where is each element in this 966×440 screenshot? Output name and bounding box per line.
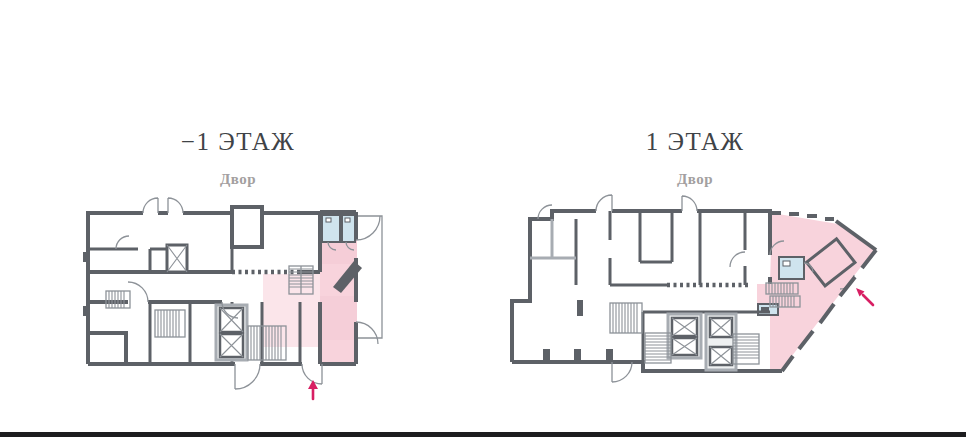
top-room	[232, 207, 262, 247]
floor-plan-1-drawing	[500, 190, 890, 410]
wet-rooms-minus-1	[322, 215, 355, 242]
courtyard-label-minus-1: Двор	[78, 171, 398, 188]
floor-plan-minus-1-drawing	[78, 196, 398, 408]
elevator-icon	[668, 314, 736, 370]
floor-plans-page: −1 ЭТАЖ Двор 1 ЭТАЖ Двор	[0, 0, 966, 440]
floor-title-1: 1 ЭТАЖ	[500, 128, 890, 156]
courtyard-label-1: Двор	[500, 171, 890, 188]
floor-title-minus-1: −1 ЭТАЖ	[78, 128, 398, 156]
entrance-arrow-up-left-icon	[856, 288, 873, 305]
terrace-outline	[357, 216, 382, 338]
footer-rule	[0, 432, 966, 437]
